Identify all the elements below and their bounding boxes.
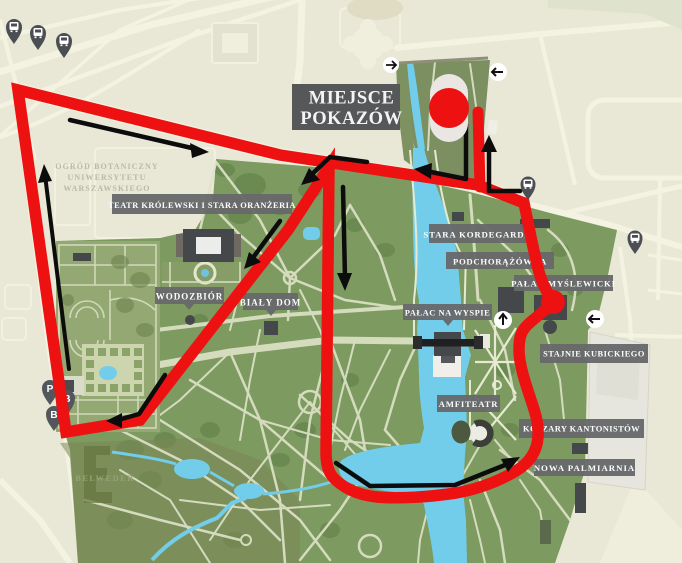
svg-text:AMFITEATR: AMFITEATR: [439, 399, 499, 409]
svg-text:OGRÓD BOTANICZNY: OGRÓD BOTANICZNY: [55, 161, 158, 171]
svg-text:BELWEDER: BELWEDER: [75, 473, 135, 483]
svg-text:WODOZBIÓR: WODOZBIÓR: [156, 292, 224, 302]
svg-text:POKAZÓW: POKAZÓW: [300, 107, 402, 129]
svg-text:STAJNIE KUBICKIEGO: STAJNIE KUBICKIEGO: [543, 350, 645, 359]
svg-text:TEATR KRÓLEWSKI I STARA ORANŻE: TEATR KRÓLEWSKI I STARA ORANŻERIA: [108, 200, 296, 210]
svg-text:UNIWERSYTETU: UNIWERSYTETU: [68, 173, 147, 182]
svg-text:P: P: [47, 384, 54, 395]
svg-text:NOWA PALMIARNIA: NOWA PALMIARNIA: [534, 463, 636, 473]
svg-text:B: B: [50, 410, 57, 421]
svg-text:PAŁAC NA WYSPIE: PAŁAC NA WYSPIE: [405, 308, 491, 318]
svg-text:WARSZAWSKIEGO: WARSZAWSKIEGO: [63, 184, 150, 193]
svg-text:BIAŁY DOM: BIAŁY DOM: [240, 298, 301, 308]
svg-text:STARA KORDEGARDA: STARA KORDEGARDA: [423, 230, 531, 240]
svg-text:MIEJSCE: MIEJSCE: [309, 89, 395, 109]
svg-text:PAŁAC MYŚLEWICKI: PAŁAC MYŚLEWICKI: [511, 279, 616, 289]
